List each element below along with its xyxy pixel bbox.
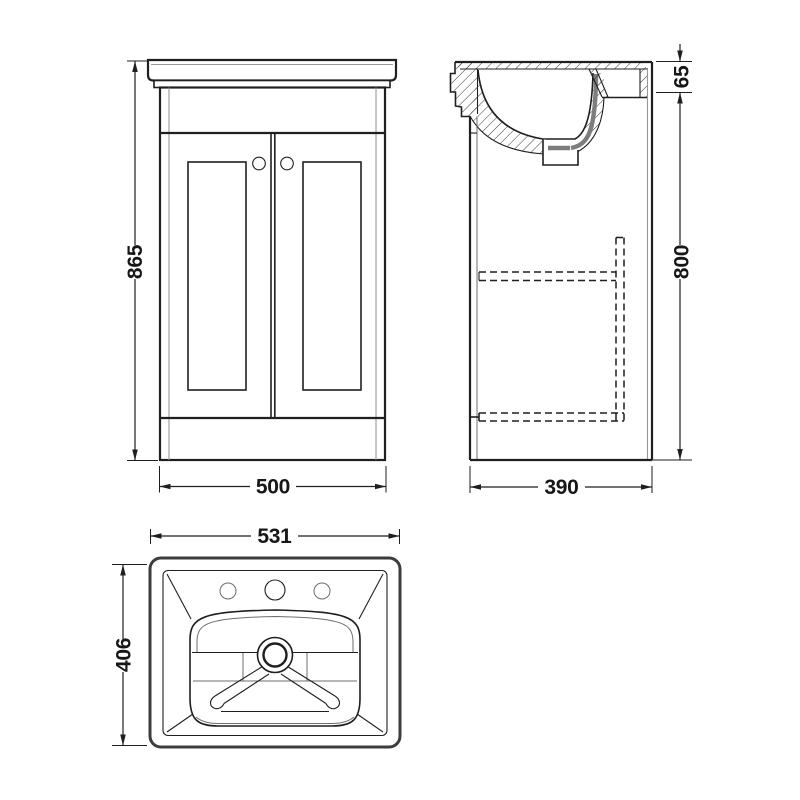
dim-basin-rim-height-value: 65 xyxy=(671,65,694,88)
dim-basin-depth-value: 406 xyxy=(113,638,136,672)
dim-overall-width-value: 500 xyxy=(256,476,290,499)
dim-overall-height-value: 865 xyxy=(124,244,147,279)
front-view: 865 500 xyxy=(124,60,396,499)
plan-view: 531 406 xyxy=(112,525,400,747)
cabinet-body xyxy=(160,88,385,461)
basin-bowl-plan xyxy=(190,610,360,726)
dim-basin-width-value: 531 xyxy=(257,525,292,548)
vanity-technical-drawing: 865 500 xyxy=(0,0,800,800)
counter-top xyxy=(148,60,396,88)
dim-cabinet-depth-value: 390 xyxy=(544,476,578,499)
basin-rim-hatch xyxy=(458,63,646,69)
dim-cabinet-height-value: 800 xyxy=(671,245,694,279)
drain-hole xyxy=(264,644,287,667)
